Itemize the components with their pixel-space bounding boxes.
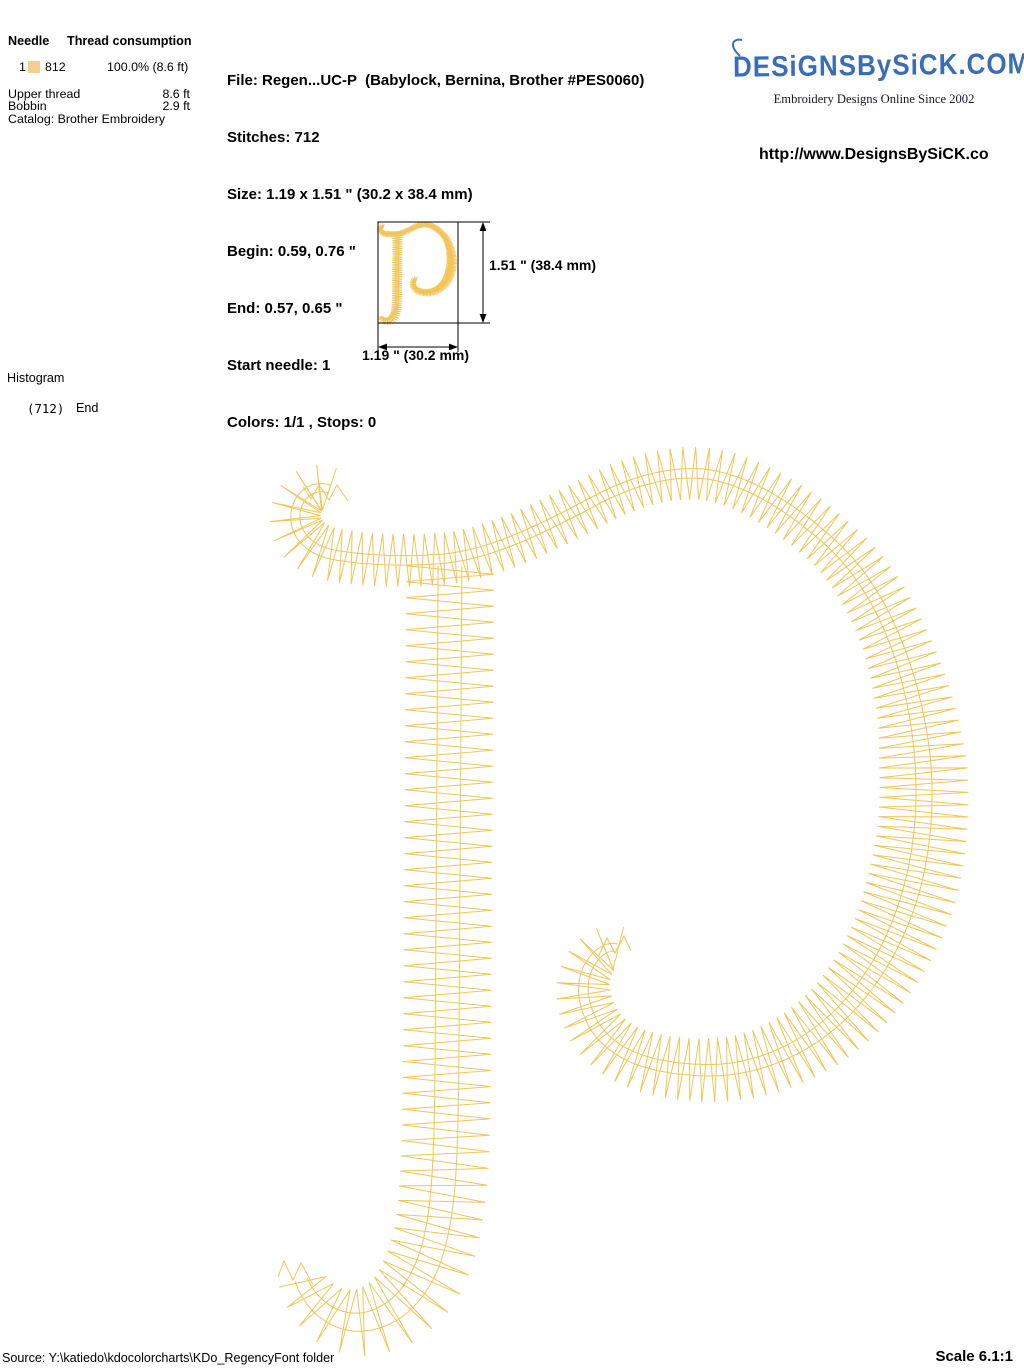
- needle-column-header: Needle: [8, 34, 49, 48]
- histogram-end-label: End: [76, 401, 98, 415]
- thread-color-code: 812: [45, 60, 66, 74]
- colors-line: Colors: 1/1 , Stops: 0: [227, 413, 644, 432]
- histogram-title: Histogram: [7, 371, 64, 385]
- stitch-count-line: Stitches: 712: [227, 128, 644, 147]
- source-path-line: Source: Y:\katiedo\kdocolorcharts\KDo_Re…: [2, 1351, 334, 1365]
- site-logo: DESiGNSBySiCK.COM: [733, 46, 1015, 84]
- histogram-stitch-count: (712): [27, 401, 64, 416]
- logo-tagline: Embroidery Designs Online Since 2002: [733, 92, 1015, 107]
- thread-color-swatch: [28, 61, 40, 73]
- file-name-line: File: Regen...UC-P (Babylock, Bernina, B…: [227, 71, 644, 90]
- stitch-polyline: [279, 566, 494, 1356]
- file-info-block: File: Regen...UC-P (Babylock, Bernina, B…: [227, 33, 644, 451]
- thread-consumption-value: 100.0% (8.6 ft): [107, 60, 188, 74]
- width-dimension-label: 1.19 " (30.2 mm): [362, 347, 469, 363]
- stitch-tip-squiggle: [278, 1261, 313, 1285]
- site-url: http://www.DesignsBySiCK.co: [759, 146, 989, 164]
- height-dimension-label: 1.51 " (38.4 mm): [489, 257, 596, 273]
- needle-number: 1: [19, 60, 26, 74]
- bobbin-value: 2.9 ft: [8, 99, 190, 113]
- catalog-line: Catalog: Brother Embroidery: [8, 112, 165, 126]
- stitch-rendering-large: [270, 447, 969, 1356]
- stitch-tip-squiggle: [598, 936, 631, 957]
- scale-label: Scale 6.1:1: [908, 1348, 1013, 1365]
- consumption-column-header: Thread consumption: [67, 34, 192, 48]
- end-line: End: 0.57, 0.65 ": [227, 299, 644, 318]
- stitch-polyline: [270, 447, 969, 1102]
- size-line: Size: 1.19 x 1.51 " (30.2 x 38.4 mm): [227, 185, 644, 204]
